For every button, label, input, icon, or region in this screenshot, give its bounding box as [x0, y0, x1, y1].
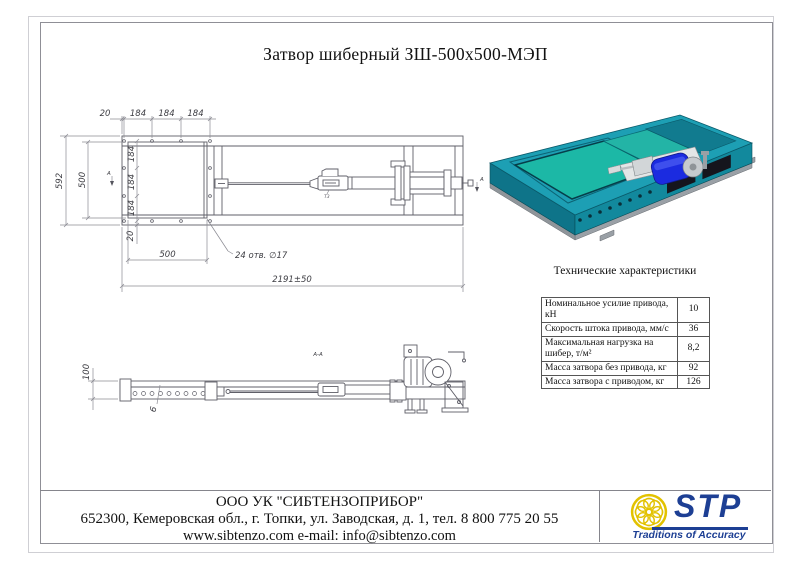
specs-title: Технические характеристики: [525, 265, 725, 277]
logo-tagline: Traditions of Accuracy: [628, 529, 750, 541]
dim-label: 6: [149, 405, 160, 413]
spec-value: 126: [678, 375, 710, 389]
dim-label: 184: [187, 109, 203, 119]
dim-label: 2191±50: [272, 275, 312, 285]
dim-label: 184: [127, 174, 137, 190]
stp-knot-icon: [630, 493, 668, 531]
company-name: ООО УК "СИБТЕНЗОПРИБОР": [40, 494, 599, 511]
dim-label: 20: [126, 231, 136, 242]
dim-label: 184: [127, 146, 137, 162]
spec-row: Масса затвора без привода, кг 92: [542, 361, 710, 375]
spec-label: Скорость штока привода, мм/с: [542, 322, 678, 336]
side-bolt-holes: [133, 392, 205, 396]
company-info: ООО УК "СИБТЕНЗОПРИБОР" 652300, Кемеровс…: [40, 491, 600, 542]
dim-label: 184: [127, 200, 137, 216]
logo-text: STP: [674, 488, 742, 525]
dim-label: 592: [55, 173, 65, 189]
spec-value: 36: [678, 322, 710, 336]
section-title: А-А: [312, 352, 323, 358]
company-address: 652300, Кемеровская обл., г. Топки, ул. …: [40, 511, 599, 528]
dim-label: 500: [78, 172, 88, 188]
spec-row: Номинальное усилие привода, кН 10: [542, 298, 710, 323]
side-view-drawing: А-А: [60, 330, 490, 420]
weld-label: Т3: [324, 194, 330, 200]
spec-row: Скорость штока привода, мм/с 36: [542, 322, 710, 336]
dim-label: 100: [82, 364, 92, 380]
dim-label: 500: [159, 250, 175, 260]
spec-label: Максимальная нагрузка на шибер, т/м²: [542, 336, 678, 361]
spec-value: 92: [678, 361, 710, 375]
top-view-linework: [122, 136, 473, 225]
dim-label: 184: [130, 109, 146, 119]
spec-row: Масса затвора с приводом, кг 126: [542, 375, 710, 389]
spec-value: 8,2: [678, 336, 710, 361]
top-view-drawing: 20 184 184 184 592 500 184 184 184: [30, 78, 490, 293]
spec-label: Масса затвора с приводом, кг: [542, 375, 678, 389]
spec-row: Максимальная нагрузка на шибер, т/м² 8,2: [542, 336, 710, 361]
holes-note: 24 отв. ∅17: [235, 251, 288, 261]
actuator-linework: [215, 161, 473, 205]
render-body: [490, 115, 755, 241]
spec-value: 10: [678, 298, 710, 323]
spec-label: Масса затвора без привода, кг: [542, 361, 678, 375]
section-marker-label: А: [106, 171, 111, 177]
dim-label: 184: [158, 109, 174, 119]
side-view-linework: [120, 345, 468, 413]
title-block: ООО УК "СИБТЕНЗОПРИБОР" 652300, Кемеровс…: [40, 490, 771, 542]
drawing-title: Затвор шиберный ЗШ-500х500-МЭП: [40, 44, 771, 65]
logo-block: STP Traditions of Accuracy: [600, 491, 771, 542]
drawing-sheet: Затвор шиберный ЗШ-500х500-МЭП: [0, 0, 800, 566]
spec-label: Номинальное усилие привода, кН: [542, 298, 678, 323]
valve-3d-render: [480, 105, 760, 245]
dim-label: 20: [100, 109, 111, 119]
company-contacts: www.sibtenzo.com e-mail: info@sibtenzo.c…: [40, 528, 599, 544]
specs-table: Номинальное усилие привода, кН 10 Скорос…: [541, 297, 710, 389]
